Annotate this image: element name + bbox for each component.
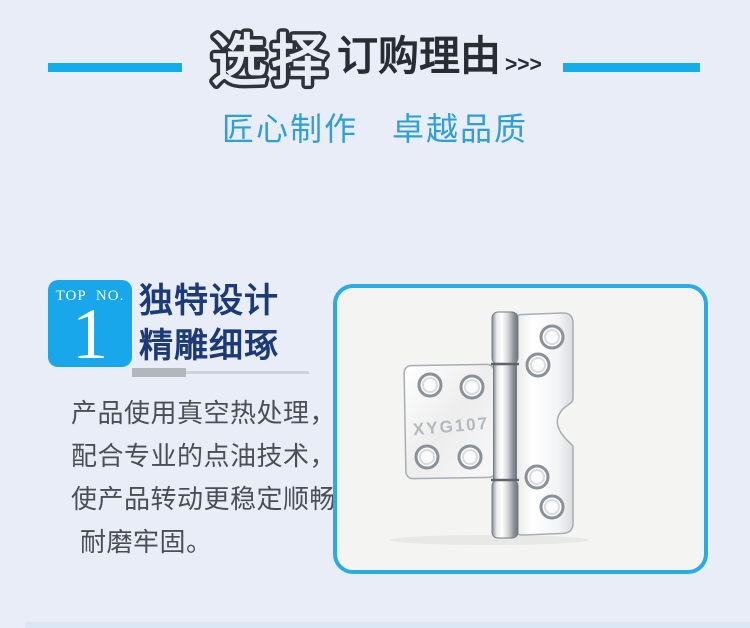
- hinge-product-image: XYG107: [337, 288, 704, 570]
- divider-accent-segment: [132, 368, 186, 377]
- feature-description: 产品使用真空热处理， 配合专业的点油技术， 使产品转动更稳定顺畅 耐磨牢固。: [71, 392, 336, 564]
- top-rank-badge: TOP NO. 1: [48, 280, 132, 367]
- header-accent-bar-right: [563, 63, 700, 72]
- section-title: 订购理由: [337, 36, 501, 77]
- hinge-knuckle-top: [492, 312, 518, 364]
- bubble-title-text: 选择: [211, 29, 331, 92]
- section-subtitle: 匠心制作 卓越品质: [0, 104, 750, 150]
- description-line: 耐磨牢固。: [71, 521, 336, 564]
- next-section-edge: [25, 622, 750, 628]
- feature-heading: 独特设计 精雕细琢: [139, 279, 279, 369]
- description-line: 产品使用真空热处理，: [71, 392, 336, 435]
- header-accent-bar-left: [48, 63, 182, 72]
- product-image-frame: XYG107: [333, 284, 708, 574]
- description-line: 使产品转动更稳定顺畅: [71, 478, 336, 521]
- heading-divider: [132, 368, 309, 377]
- chevron-arrows-icon: >>>: [505, 52, 542, 77]
- feature-heading-line1: 独特设计: [139, 279, 279, 324]
- bubble-title-graphic: 选择: [203, 22, 339, 98]
- hinge-knuckle-middle: [494, 364, 517, 480]
- badge-number: 1: [72, 305, 108, 363]
- description-line: 配合专业的点油技术，: [71, 435, 336, 478]
- hinge-shadow: [389, 535, 589, 545]
- feature-heading-line2: 精雕细琢: [139, 324, 279, 369]
- hinge-knuckle-bottom: [492, 480, 518, 538]
- promo-banner: 选择 订购理由 >>> 匠心制作 卓越品质 TOP NO. 1 独特设计 精雕细…: [0, 0, 750, 628]
